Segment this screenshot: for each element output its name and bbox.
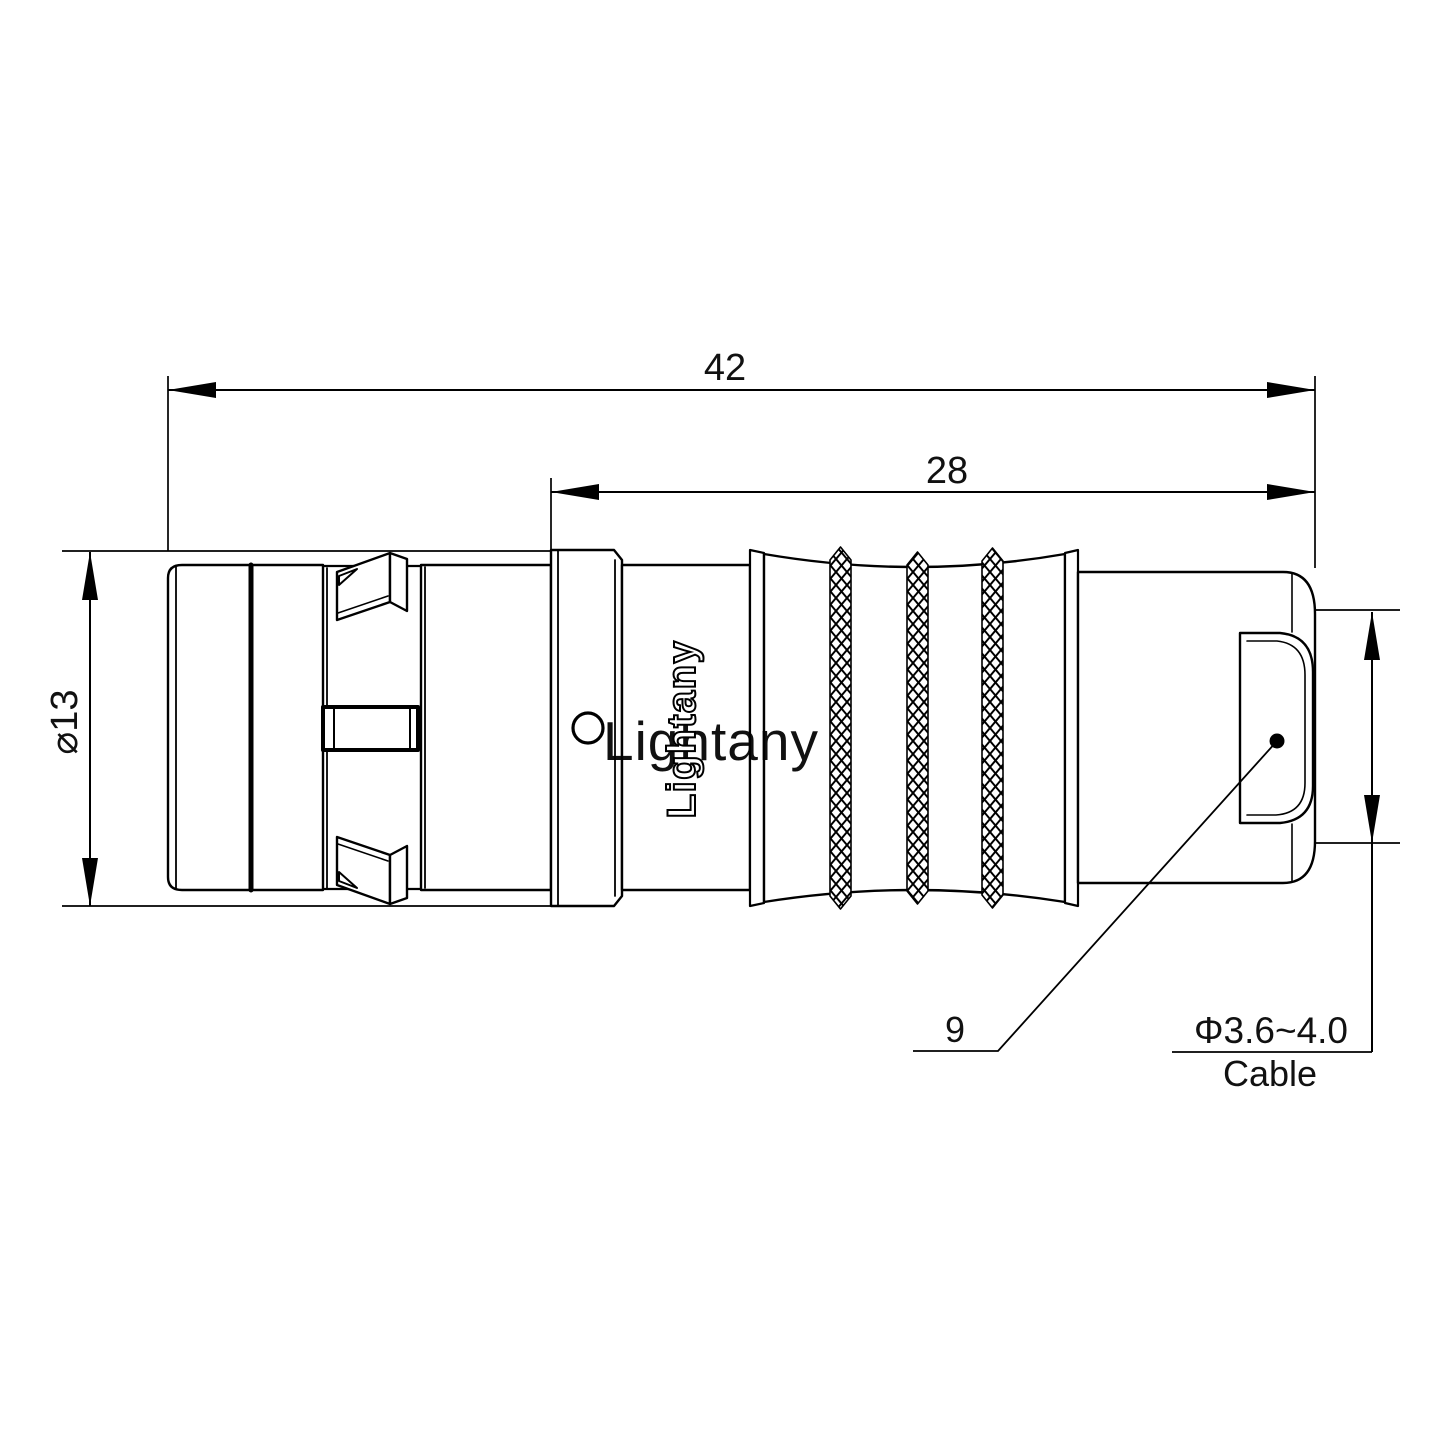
dim-13-arrow-bottom	[82, 858, 98, 906]
dim-42-label: 42	[704, 347, 746, 389]
vent-hole	[573, 713, 603, 743]
watermark-text: Lightany	[603, 710, 819, 772]
dim-28-arrow-right	[1267, 484, 1315, 500]
dim-13-label: ⌀13	[44, 689, 86, 754]
front-barrel	[421, 565, 551, 890]
cable-word-label: Cable	[1223, 1053, 1317, 1094]
size-9-label: 9	[945, 1009, 965, 1050]
dim-overall-length: 42	[168, 347, 1315, 568]
dim-13-arrow-top	[82, 552, 98, 600]
knurl-band-3	[982, 548, 1003, 908]
logo-text: Lightany	[660, 640, 704, 819]
dim-42-arrow-right	[1267, 382, 1315, 398]
cable-bushing	[1240, 633, 1313, 823]
knurl-band-2	[907, 552, 928, 904]
connector-technical-drawing: Lightany Lightany 42 28 ⌀13	[0, 0, 1440, 1440]
dim-28-label: 28	[926, 450, 968, 492]
knurl-band-1	[830, 547, 851, 909]
dim-cable-arrow-up	[1364, 612, 1380, 660]
latch-prong-top-side	[390, 553, 407, 611]
dim-42-arrow-left	[168, 382, 216, 398]
front-sleeve	[168, 565, 323, 890]
grip-ring-right	[1065, 550, 1078, 906]
latch-prong-bottom-side	[390, 846, 407, 904]
latch-prong-top	[337, 553, 407, 620]
dim-rear-length: 28	[551, 450, 1315, 549]
dim-cable-arrow-down	[1364, 795, 1380, 843]
latch-center-bar	[323, 707, 418, 750]
cable-diameter-label: Φ3.6~4.0	[1194, 1010, 1348, 1051]
dim-28-arrow-left	[551, 484, 599, 500]
drawing-canvas: Lightany Lightany 42 28 ⌀13	[0, 0, 1440, 1440]
latch-prong-bottom	[337, 837, 407, 904]
